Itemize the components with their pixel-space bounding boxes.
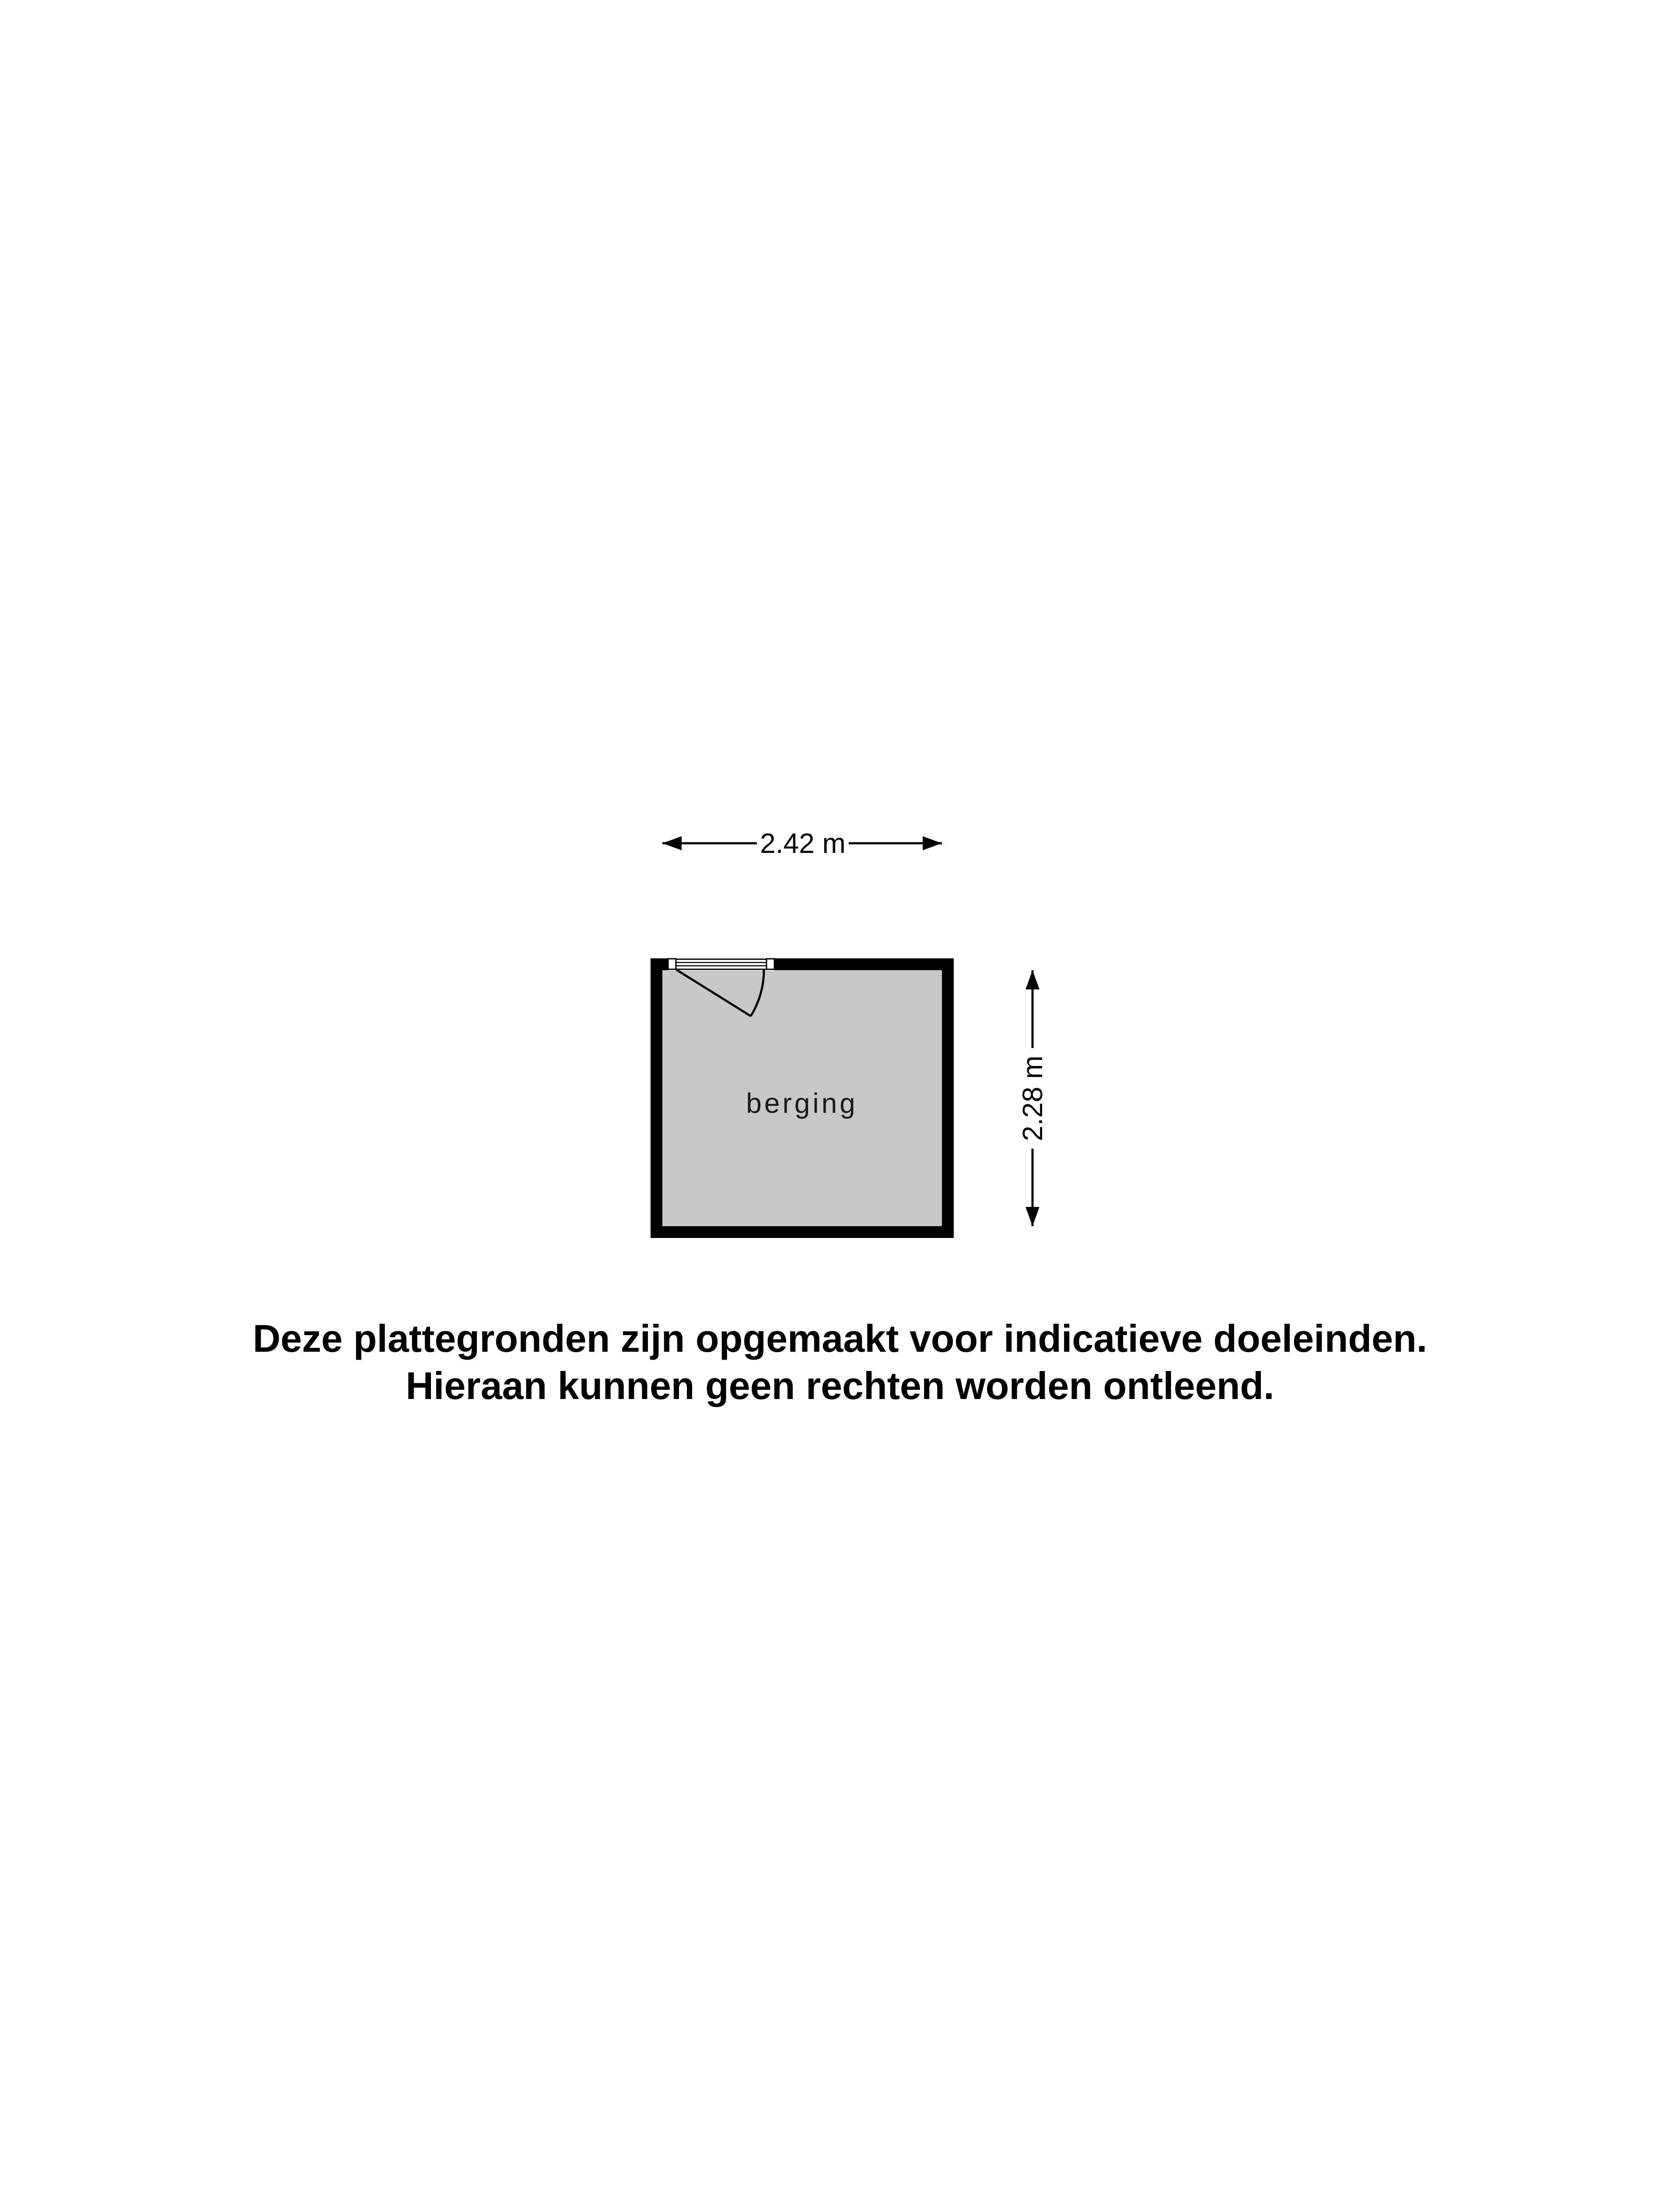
arrow-right-icon [923, 836, 942, 850]
floorplan-page: { "floor_plan": { "room": { "label": "be… [0, 0, 1680, 2188]
dimension-height: 2.28 m [1017, 970, 1048, 1226]
arrow-left-icon [662, 836, 682, 850]
door-jamb-right [766, 959, 774, 969]
door-threshold [675, 959, 767, 969]
disclaimer-text: Deze plattegronden zijn opgemaakt voor i… [0, 1315, 1680, 1410]
height-dimension-label: 2.28 m [1017, 1055, 1048, 1141]
floor-plan-drawing: berging 2.42 m 2.28 m [0, 0, 1680, 2188]
door-jamb-left [668, 959, 676, 969]
dimension-width: 2.42 m [662, 828, 942, 859]
width-dimension-label: 2.42 m [760, 828, 846, 859]
room-label: berging [746, 1087, 858, 1119]
arrow-up-icon [1025, 970, 1039, 989]
arrow-down-icon [1025, 1207, 1039, 1226]
disclaimer-line-1: Deze plattegronden zijn opgemaakt voor i… [0, 1315, 1680, 1362]
disclaimer-line-2: Hieraan kunnen geen rechten worden ontle… [0, 1362, 1680, 1410]
